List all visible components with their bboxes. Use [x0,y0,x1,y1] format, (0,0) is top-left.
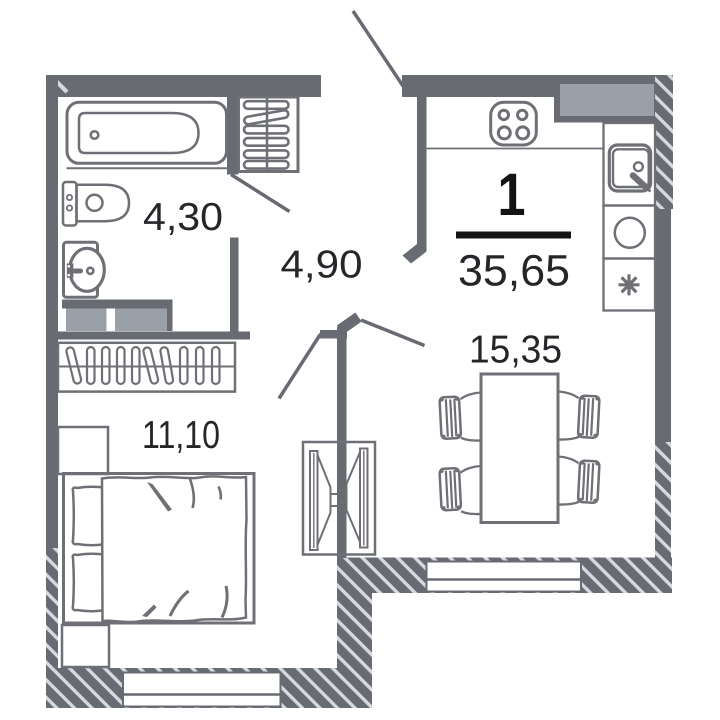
svg-text:15,35: 15,35 [469,329,562,372]
svg-text:35,65: 35,65 [458,247,570,296]
svg-text:4,30: 4,30 [143,196,223,239]
svg-text:1: 1 [498,161,526,228]
svg-text:4,90: 4,90 [281,244,363,287]
svg-text:11,10: 11,10 [142,414,220,457]
